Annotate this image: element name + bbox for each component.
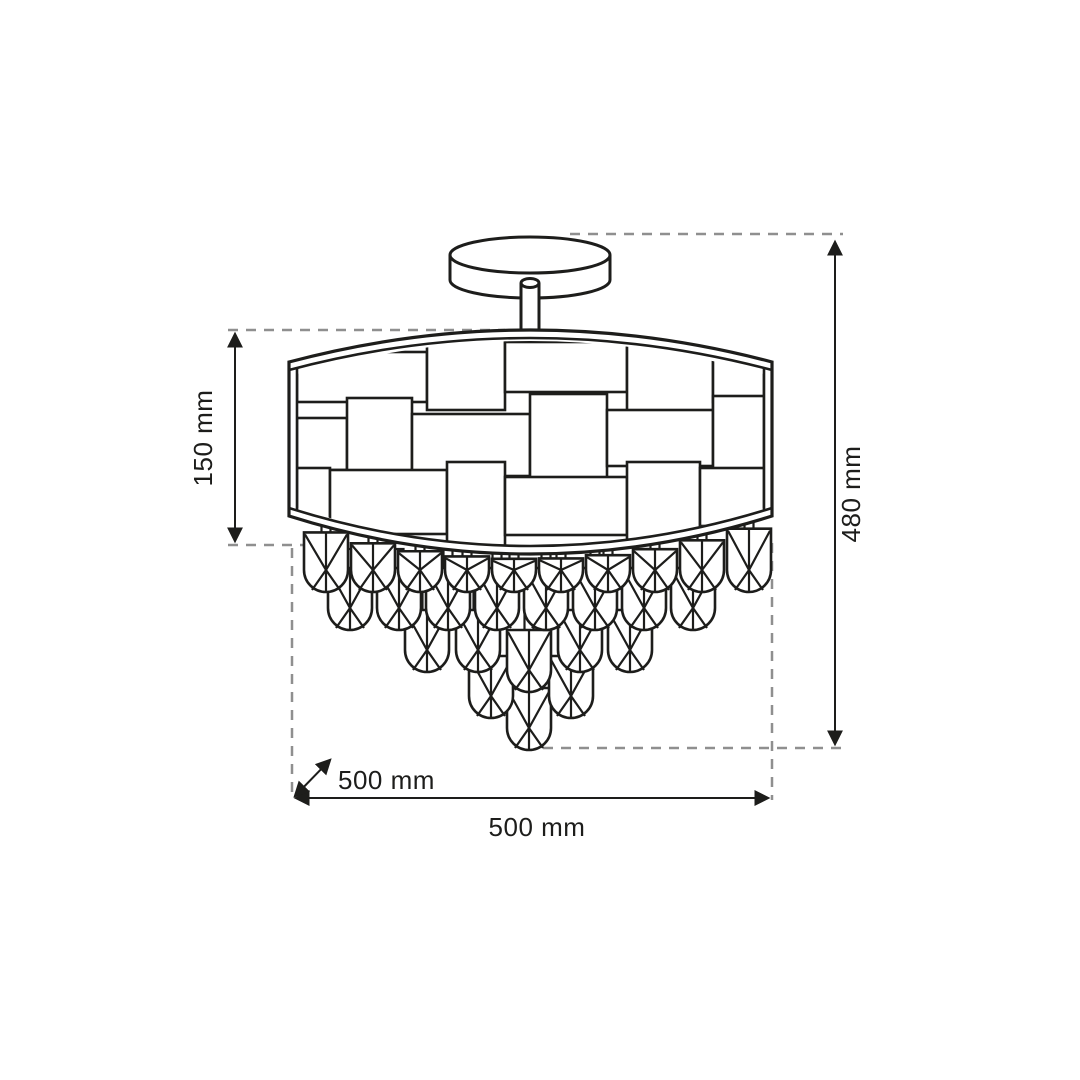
dim-shade-height: 150 mm — [188, 334, 235, 541]
dim-depth-label: 500 mm — [338, 765, 435, 795]
dim-shade-height-label: 150 mm — [188, 390, 218, 487]
chandelier-dimension-drawing: 150 mm 480 mm 500 mm 500 mm — [0, 0, 1080, 1080]
dim-depth-line — [295, 760, 330, 796]
dim-total-height: 480 mm — [835, 242, 866, 744]
weave-slat — [713, 396, 764, 476]
weave-pattern — [297, 338, 764, 546]
dim-total-height-label: 480 mm — [836, 446, 866, 543]
weave-slat — [447, 462, 505, 546]
drawing-canvas: 150 mm 480 mm 500 mm 500 mm — [0, 0, 1080, 1080]
weave-slat — [347, 398, 412, 478]
rod-cap — [521, 279, 539, 288]
weave-slat — [530, 394, 607, 478]
weave-slat — [505, 477, 627, 535]
dim-width-label: 500 mm — [489, 812, 586, 842]
weave-slat — [505, 342, 627, 392]
weave-slat — [607, 410, 713, 466]
weave-slat — [297, 418, 347, 470]
dim-depth: 500 mm — [295, 760, 435, 796]
drum-shade — [289, 330, 772, 554]
weave-slat — [427, 338, 505, 410]
dim-width: 500 mm — [296, 798, 768, 842]
